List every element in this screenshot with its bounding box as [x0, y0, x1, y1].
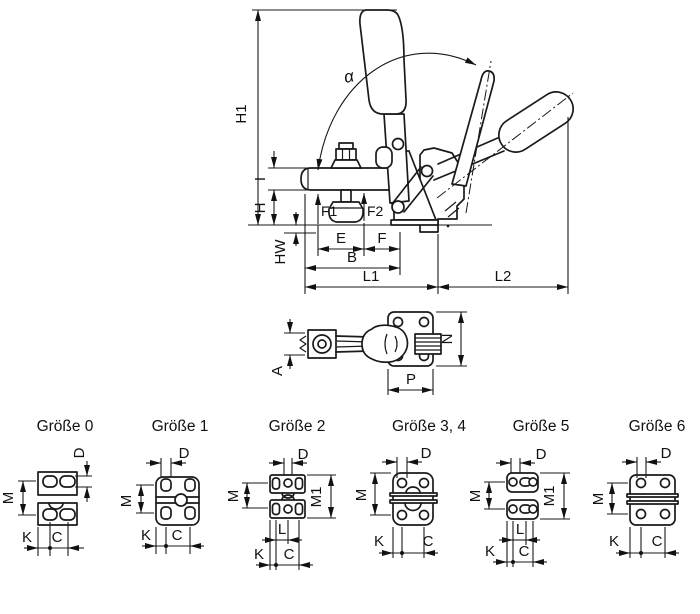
dim-label-f2: F2 [367, 203, 384, 219]
dim-label-m: M [467, 490, 484, 503]
dim-label-a: A [269, 366, 286, 376]
dim-label-k: K [374, 533, 384, 550]
dim-label-k: K [609, 533, 619, 550]
dim-label-m: M [118, 495, 135, 508]
dim-label-m: M [0, 492, 17, 505]
size-cell-3: Größe 3, 4 D M K [353, 418, 466, 558]
dim-label-d: D [536, 446, 547, 463]
dim-label-f: F [377, 230, 386, 247]
dim-label-h: H [252, 203, 269, 214]
technical-drawing-page: H1 I H HW F1 F2 E F B L1 [0, 0, 700, 614]
size-cell-2: Größe 2 D M M1 [225, 418, 336, 570]
dim-label-k: K [22, 529, 32, 546]
dim-label-d: D [421, 445, 432, 462]
spindle-tip [300, 336, 306, 352]
dim-label-hw: HW [272, 239, 289, 265]
size-cell-1: Größe 1 D M K C [118, 418, 208, 554]
dim-label-c: C [519, 543, 530, 560]
dim-label-m: M [353, 489, 370, 502]
size-title: Größe 0 [37, 418, 94, 435]
dim-label-m: M [590, 493, 607, 506]
dim-label-d: D [71, 447, 88, 458]
toggle-clamp-drawing: H1 I H HW F1 F2 E F B L1 [0, 0, 700, 614]
dim-label-k: K [254, 546, 264, 563]
dim-label-m: M [225, 490, 242, 503]
dim-label-d: D [661, 445, 672, 462]
dim-label-f1: F1 [321, 203, 338, 219]
size-cell-0: Größe 0 D M K C [0, 418, 94, 556]
size-title: Größe 6 [629, 418, 686, 435]
top-view: A N P [269, 312, 467, 395]
main-view: H1 I H HW F1 F2 E F B L1 [233, 10, 580, 294]
dim-label-p: P [406, 371, 416, 388]
dim-label-c: C [652, 533, 663, 550]
dim-label-l2: L2 [495, 268, 512, 285]
size-title: Größe 2 [269, 418, 326, 435]
dim-label-m1: M1 [308, 487, 325, 508]
size-cell-4: Größe 5 D M M1 [467, 418, 570, 567]
top-view-parts [300, 312, 441, 366]
dim-label-n: N [439, 334, 456, 345]
dim-label-h1: H1 [233, 104, 250, 123]
size-cell-5: Größe 6 D M K C [590, 418, 685, 558]
dim-label-c: C [423, 533, 434, 550]
dim-label-i: I [252, 177, 269, 181]
dim-label-c: C [52, 529, 63, 546]
dim-label-l: L [516, 521, 524, 538]
spindle-block-top [415, 334, 441, 354]
dim-label-m1: M1 [541, 486, 558, 507]
dim-label-k: K [485, 543, 495, 560]
size-title: Größe 1 [152, 418, 209, 435]
dim-label-c: C [172, 527, 183, 544]
dim-label-b: B [347, 249, 357, 266]
dim-label-d: D [298, 446, 309, 463]
dim-label-k: K [141, 527, 151, 544]
size-variants: Größe 0 D M K C [0, 418, 685, 570]
dim-label-c: C [284, 546, 295, 563]
dim-label-d: D [179, 445, 190, 462]
dim-label-e: E [336, 230, 346, 247]
size-title: Größe 5 [513, 418, 570, 435]
dim-label-alpha: α [342, 66, 357, 87]
dim-label-l: L [278, 521, 286, 538]
size-title: Größe 3, 4 [392, 418, 466, 435]
dim-label-l1: L1 [363, 268, 380, 285]
